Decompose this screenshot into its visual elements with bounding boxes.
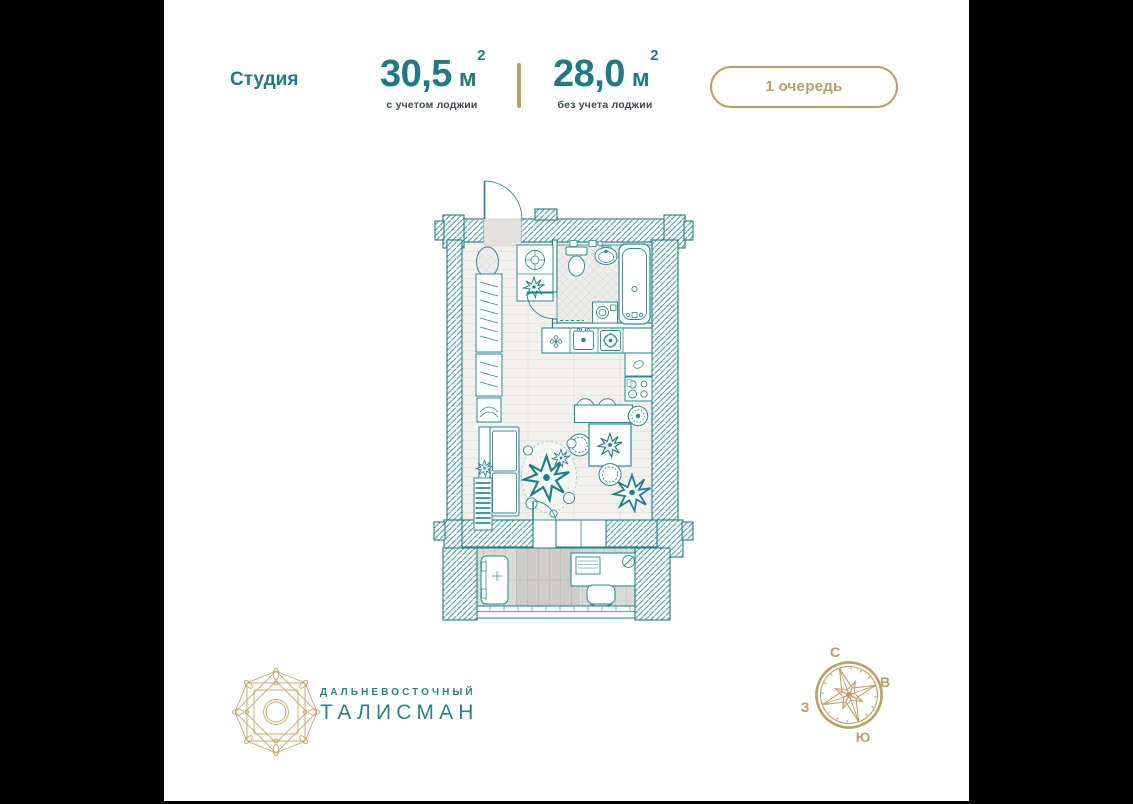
area-without-loggia-value: 28,0м2 xyxy=(530,55,680,93)
apartment-type-label: Студия xyxy=(230,69,298,91)
area-without-loggia-caption: без учета лоджии xyxy=(530,99,680,111)
phase-badge: 1 очередь xyxy=(710,66,898,108)
area-with-loggia: 30,5м2 с учетом лоджии xyxy=(357,55,507,111)
toilet-icon xyxy=(566,247,587,255)
area-with-loggia-caption: с учетом лоджии xyxy=(357,99,507,111)
area-with-loggia-value: 30,5м2 xyxy=(357,55,507,93)
logo-text: ДАЛЬНЕВОСТОЧНЫЙ ТАЛИСМАН xyxy=(320,687,520,725)
compass-rose-icon: С В З Ю xyxy=(792,638,916,756)
compass-north-label: С xyxy=(830,644,840,660)
area-without-loggia: 28,0м2 без учета лоджии xyxy=(530,55,680,111)
loggia-window-icon xyxy=(477,606,635,618)
compass-east-label: В xyxy=(880,674,890,690)
entry-door-swing-icon xyxy=(485,181,522,219)
gold-divider xyxy=(517,63,521,108)
laptop-icon xyxy=(576,557,600,574)
floorplan-sheet: Студия 30,5м2 с учетом лоджии 28,0м2 без… xyxy=(164,0,969,802)
right-letterbox xyxy=(969,0,1133,804)
logo-line1: ДАЛЬНЕВОСТОЧНЫЙ xyxy=(320,687,520,698)
floor-plan-drawing xyxy=(430,170,700,630)
wardrobe-icon xyxy=(476,274,502,352)
screenshot-root: Студия 30,5м2 с учетом лоджии 28,0м2 без… xyxy=(0,0,1133,804)
bar-table-icon xyxy=(575,405,633,423)
logo-emblem-icon xyxy=(228,664,324,760)
logo-line2: ТАЛИСМАН xyxy=(320,701,520,725)
desk-chair-icon xyxy=(587,585,615,604)
compass-south-label: Ю xyxy=(856,729,870,745)
compass-west-label: З xyxy=(801,699,810,715)
entry-rug-icon xyxy=(477,247,499,277)
left-letterbox xyxy=(0,0,164,804)
